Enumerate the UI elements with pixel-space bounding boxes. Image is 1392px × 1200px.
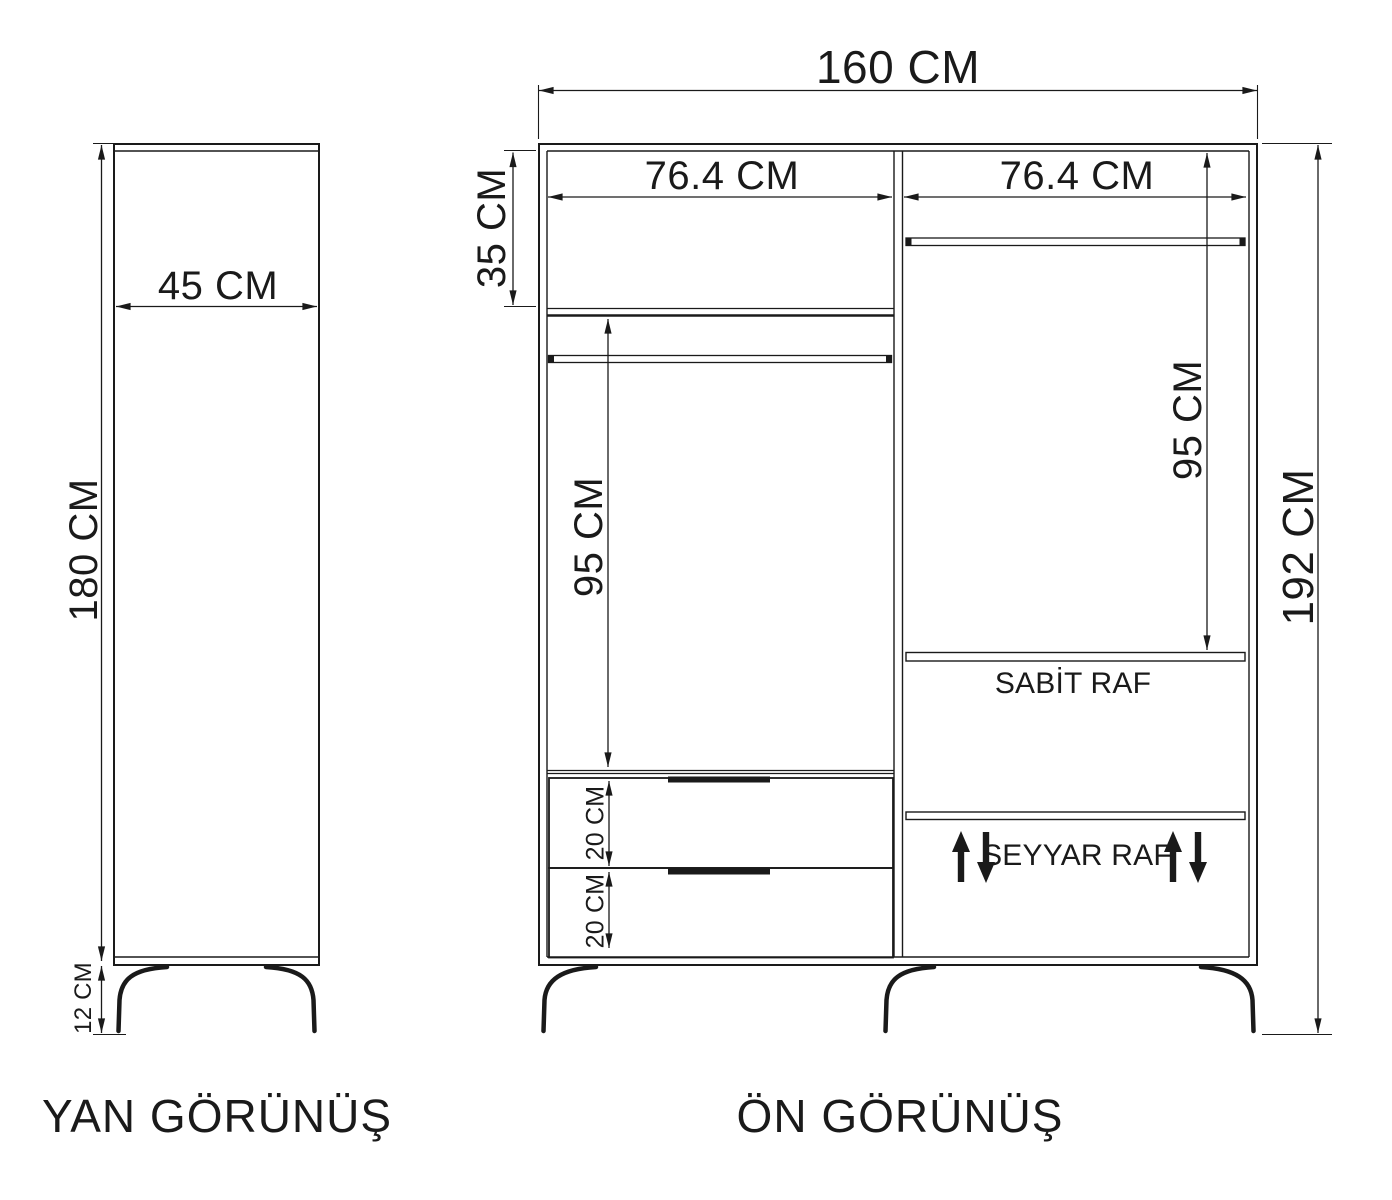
fixed-shelf-label: SABİT RAF xyxy=(995,669,1151,699)
front-view-title: ÖN GÖRÜNÜŞ xyxy=(737,1093,1064,1139)
side-left-leg xyxy=(119,967,168,1031)
front-right-leg xyxy=(1201,967,1254,1031)
dim-label-leg-height: 12 CM xyxy=(72,962,96,1034)
dim-label-left-inner-width: 76.4 CM xyxy=(645,156,800,196)
fixed-shelf-panel xyxy=(906,653,1245,662)
movable-shelf-panel xyxy=(906,812,1245,820)
front-left-leg xyxy=(544,967,597,1031)
dim-label-body-height: 180 CM xyxy=(64,478,104,621)
front-view xyxy=(539,144,1257,1031)
dim-label-top-shelf-height: 35 CM xyxy=(472,168,512,288)
left-hanging-rod xyxy=(549,356,892,363)
left-rod-end-cap xyxy=(549,355,555,363)
dim-label-left-hanging-height: 95 CM xyxy=(569,477,609,597)
dim-label-drawer1-height: 20 CM xyxy=(584,786,609,861)
dim-label-right-inner-width: 76.4 CM xyxy=(1000,156,1155,196)
side-view-title: YAN GÖRÜNÜŞ xyxy=(42,1093,392,1139)
dim-label-drawer2-height: 20 CM xyxy=(584,874,609,949)
left-rod-end-cap xyxy=(886,355,892,363)
right-rod-end-cap xyxy=(906,238,912,247)
right-rod-end-cap xyxy=(1240,238,1246,247)
drawer-2-handle xyxy=(668,869,770,875)
right-hanging-rod xyxy=(906,238,1245,246)
wardrobe-technical-drawing: 160 CM 76.4 CM 76.4 CM 35 CM 95 CM 95 CM… xyxy=(0,0,1392,1200)
dim-label-right-hanging-height: 95 CM xyxy=(1168,360,1208,480)
dim-label-depth: 45 CM xyxy=(158,266,278,306)
front-view-dimensions xyxy=(504,85,1332,1035)
drawer-1-handle xyxy=(668,777,770,783)
front-middle-leg xyxy=(886,967,935,1031)
dim-label-total-width: 160 CM xyxy=(816,44,980,90)
movable-shelf-label: SEYYAR RAF xyxy=(982,841,1172,871)
dim-label-total-height: 192 CM xyxy=(1277,468,1321,625)
side-right-leg xyxy=(266,967,315,1031)
